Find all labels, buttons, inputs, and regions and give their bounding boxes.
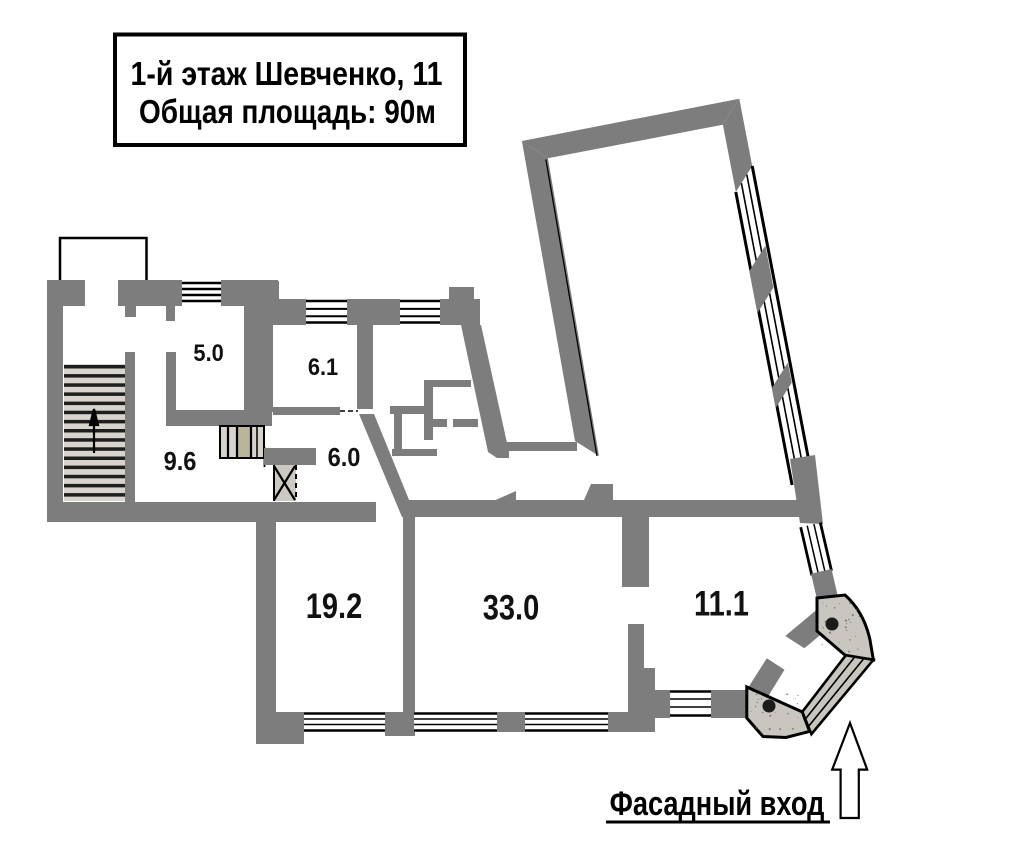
svg-text:33.0: 33.0 <box>483 588 540 627</box>
svg-text:5.0: 5.0 <box>193 339 223 366</box>
svg-text:6.1: 6.1 <box>308 353 339 380</box>
svg-text:19.2: 19.2 <box>306 586 363 625</box>
svg-text:9.6: 9.6 <box>164 448 197 476</box>
svg-text:Фасадный вход: Фасадный вход <box>610 784 825 823</box>
svg-text:1-й этаж Шевченко, 11: 1-й этаж Шевченко, 11 <box>131 55 443 92</box>
svg-text:Общая площадь: 90м: Общая площадь: 90м <box>139 94 436 131</box>
svg-text:6.0: 6.0 <box>328 444 361 472</box>
svg-text:11.1: 11.1 <box>694 584 749 623</box>
